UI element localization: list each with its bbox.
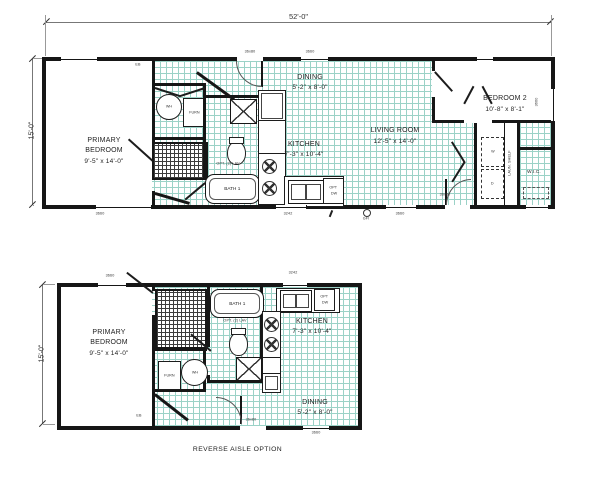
- dryer-label: D: [491, 182, 494, 186]
- window-3242: [275, 205, 307, 209]
- kitchen-sink: [280, 290, 312, 312]
- wall: [203, 95, 206, 179]
- door-leaf: [185, 182, 206, 200]
- refrigerator: [258, 90, 286, 122]
- door-swing: [236, 61, 262, 87]
- window-3660: [97, 283, 127, 287]
- furnace: FURN: [158, 361, 181, 390]
- kitchen-size: 7'-3" x 10'-4": [272, 328, 352, 335]
- refrigerator: [262, 373, 281, 393]
- dining-name: DINING: [275, 399, 355, 406]
- wall: [474, 123, 477, 205]
- primary-bedroom-name2: BEDROOM: [69, 339, 149, 346]
- laundry-shelf-label: LAUN. SHELF: [508, 141, 512, 184]
- furnace-label: FURN: [189, 111, 199, 115]
- plan-caption: REVERSE AISLE OPTION: [155, 446, 320, 453]
- dryer: D: [481, 169, 504, 199]
- primary-bedroom-name2: BEDROOM: [64, 147, 144, 154]
- toilet: [229, 332, 248, 356]
- living-door-size: 36x80: [434, 193, 456, 197]
- window-3660-label: 3660: [98, 274, 123, 278]
- kitchen-size: 7'-3" x 10'-4": [264, 151, 344, 158]
- wic-shelf: [523, 187, 549, 199]
- overall-width-label: 52'-0": [46, 12, 551, 21]
- door-swing: [216, 397, 242, 424]
- bifold-door: [451, 141, 465, 162]
- overall-height-label-main: 15'-0": [29, 111, 36, 151]
- exterior-fixture-mark: [329, 210, 333, 217]
- water-heater: WH: [156, 94, 182, 120]
- water-heater-label: WH: [166, 105, 172, 109]
- bath-vanity: [230, 99, 257, 124]
- entry-door-size-label: 36x80: [238, 50, 263, 54]
- opt-dishwasher: OPT DW: [314, 289, 335, 311]
- reverse-aisle-floorplan: PRIMARY BEDROOM 9'-5" x 14'-0" FURN WH B…: [57, 283, 362, 430]
- primary-bedroom-size: 9'-5" x 14'-0": [69, 350, 149, 357]
- window-3242-label: 3242: [276, 212, 301, 216]
- range-burner: [264, 337, 279, 352]
- window-3660-right-label: 3660: [535, 91, 539, 112]
- primary-bedroom-name1: PRIMARY: [69, 329, 149, 336]
- bathtub: BATH 1: [205, 174, 260, 204]
- dim-ext: [45, 15, 46, 56]
- window-3660: [385, 205, 417, 209]
- opt-dw-label2: DW: [330, 192, 336, 196]
- wall: [517, 123, 520, 205]
- window-3660: [302, 426, 330, 430]
- window-3660: [300, 57, 329, 61]
- elec-box-label: EB: [134, 414, 144, 418]
- window-3660: [60, 57, 98, 61]
- window-3660-label: 3660: [88, 212, 113, 216]
- overall-height-label-rev: 15'-0": [39, 334, 46, 374]
- range-burner: [262, 159, 277, 174]
- washer: W: [481, 137, 504, 167]
- bifold-door: [179, 87, 205, 97]
- wall: [152, 83, 206, 86]
- kitchen-name: KITCHEN: [264, 141, 344, 148]
- window-3660-label: 3660: [298, 50, 323, 54]
- water-heater: WH: [181, 359, 208, 386]
- bath-vanity: [236, 357, 262, 381]
- wall: [152, 137, 206, 140]
- door-swing: [446, 179, 471, 205]
- bath1-label: BATH 1: [224, 187, 240, 192]
- opt-lav-note: OPT. (2) LAV: [216, 319, 253, 323]
- entry-door-opening: [240, 426, 266, 430]
- dining-size: 5'-2" x 8'-0": [270, 84, 350, 91]
- wall: [432, 61, 435, 71]
- opt-dw-label1: OPT: [321, 295, 329, 299]
- kitchen-cabinet: [258, 120, 286, 155]
- bathtub: BATH 1: [210, 289, 264, 318]
- living-door-opening: [445, 205, 470, 209]
- wic-label: W.I.C.: [521, 170, 548, 175]
- living-room-size: 12'-5" x 14'-0": [350, 138, 440, 145]
- floorplan-sheet: 52'-0" 15'-0" PRIMARY BEDROOM 9'-5" x 14…: [0, 0, 600, 485]
- dim-ext: [33, 205, 34, 206]
- elec-box-label: EB: [133, 63, 143, 67]
- window-wic: [525, 205, 549, 209]
- entry-door-opening: [237, 57, 263, 61]
- bedroom2-name: BEDROOM 2: [465, 95, 545, 102]
- primary-bedroom-area: [46, 61, 152, 205]
- exterior-gfi-symbol: [363, 209, 371, 217]
- bedroom2-size: 10'-8" x 8'-1": [465, 106, 545, 113]
- window-3242: [282, 283, 308, 287]
- wall: [504, 123, 505, 205]
- window-3660: [95, 205, 152, 209]
- dim-ext: [551, 15, 552, 56]
- closet-shelving: [152, 142, 208, 180]
- opt-dw-label2: DW: [321, 301, 327, 305]
- dim-ext: [43, 284, 55, 285]
- furnace-label: FURN: [164, 374, 174, 378]
- gfi-label: GFI: [359, 217, 373, 221]
- opt-dw-label1: OPT: [330, 186, 338, 190]
- wall-angled: [154, 393, 189, 421]
- opt-lav-note: OPT. (2) LAV: [208, 162, 248, 166]
- dim-line-width: [46, 22, 551, 23]
- wall: [432, 120, 464, 123]
- kitchen-sink: [288, 180, 324, 204]
- entry-door-size: 36x80: [240, 418, 262, 422]
- dining-size: 5'-2" x 8'-0": [275, 409, 355, 416]
- window-3660-label: 3660: [304, 431, 329, 435]
- range-burner: [262, 181, 277, 196]
- bedroom2-area: [432, 61, 551, 123]
- dining-name: DINING: [270, 74, 350, 81]
- living-room-name: LIVING ROOM: [350, 127, 440, 134]
- window: [476, 57, 494, 61]
- window-3660-label: 3660: [388, 212, 413, 216]
- dim-ext: [43, 424, 55, 425]
- washer-label: W: [491, 150, 495, 154]
- kitchen-name: KITCHEN: [272, 318, 352, 325]
- wall: [155, 347, 203, 350]
- window-3242-label: 3242: [281, 271, 306, 275]
- window-3660-right: [551, 88, 555, 122]
- primary-bedroom-name1: PRIMARY: [64, 137, 144, 144]
- water-heater-label: WH: [191, 371, 197, 375]
- opt-dishwasher: OPT DW: [323, 178, 344, 204]
- bath1-label: BATH 1: [229, 301, 245, 306]
- primary-bedroom-size: 9'-5" x 14'-0": [64, 158, 144, 165]
- main-floorplan: PRIMARY BEDROOM 9'-5" x 14'-0" WH FURN O…: [42, 57, 555, 209]
- wall: [517, 147, 551, 150]
